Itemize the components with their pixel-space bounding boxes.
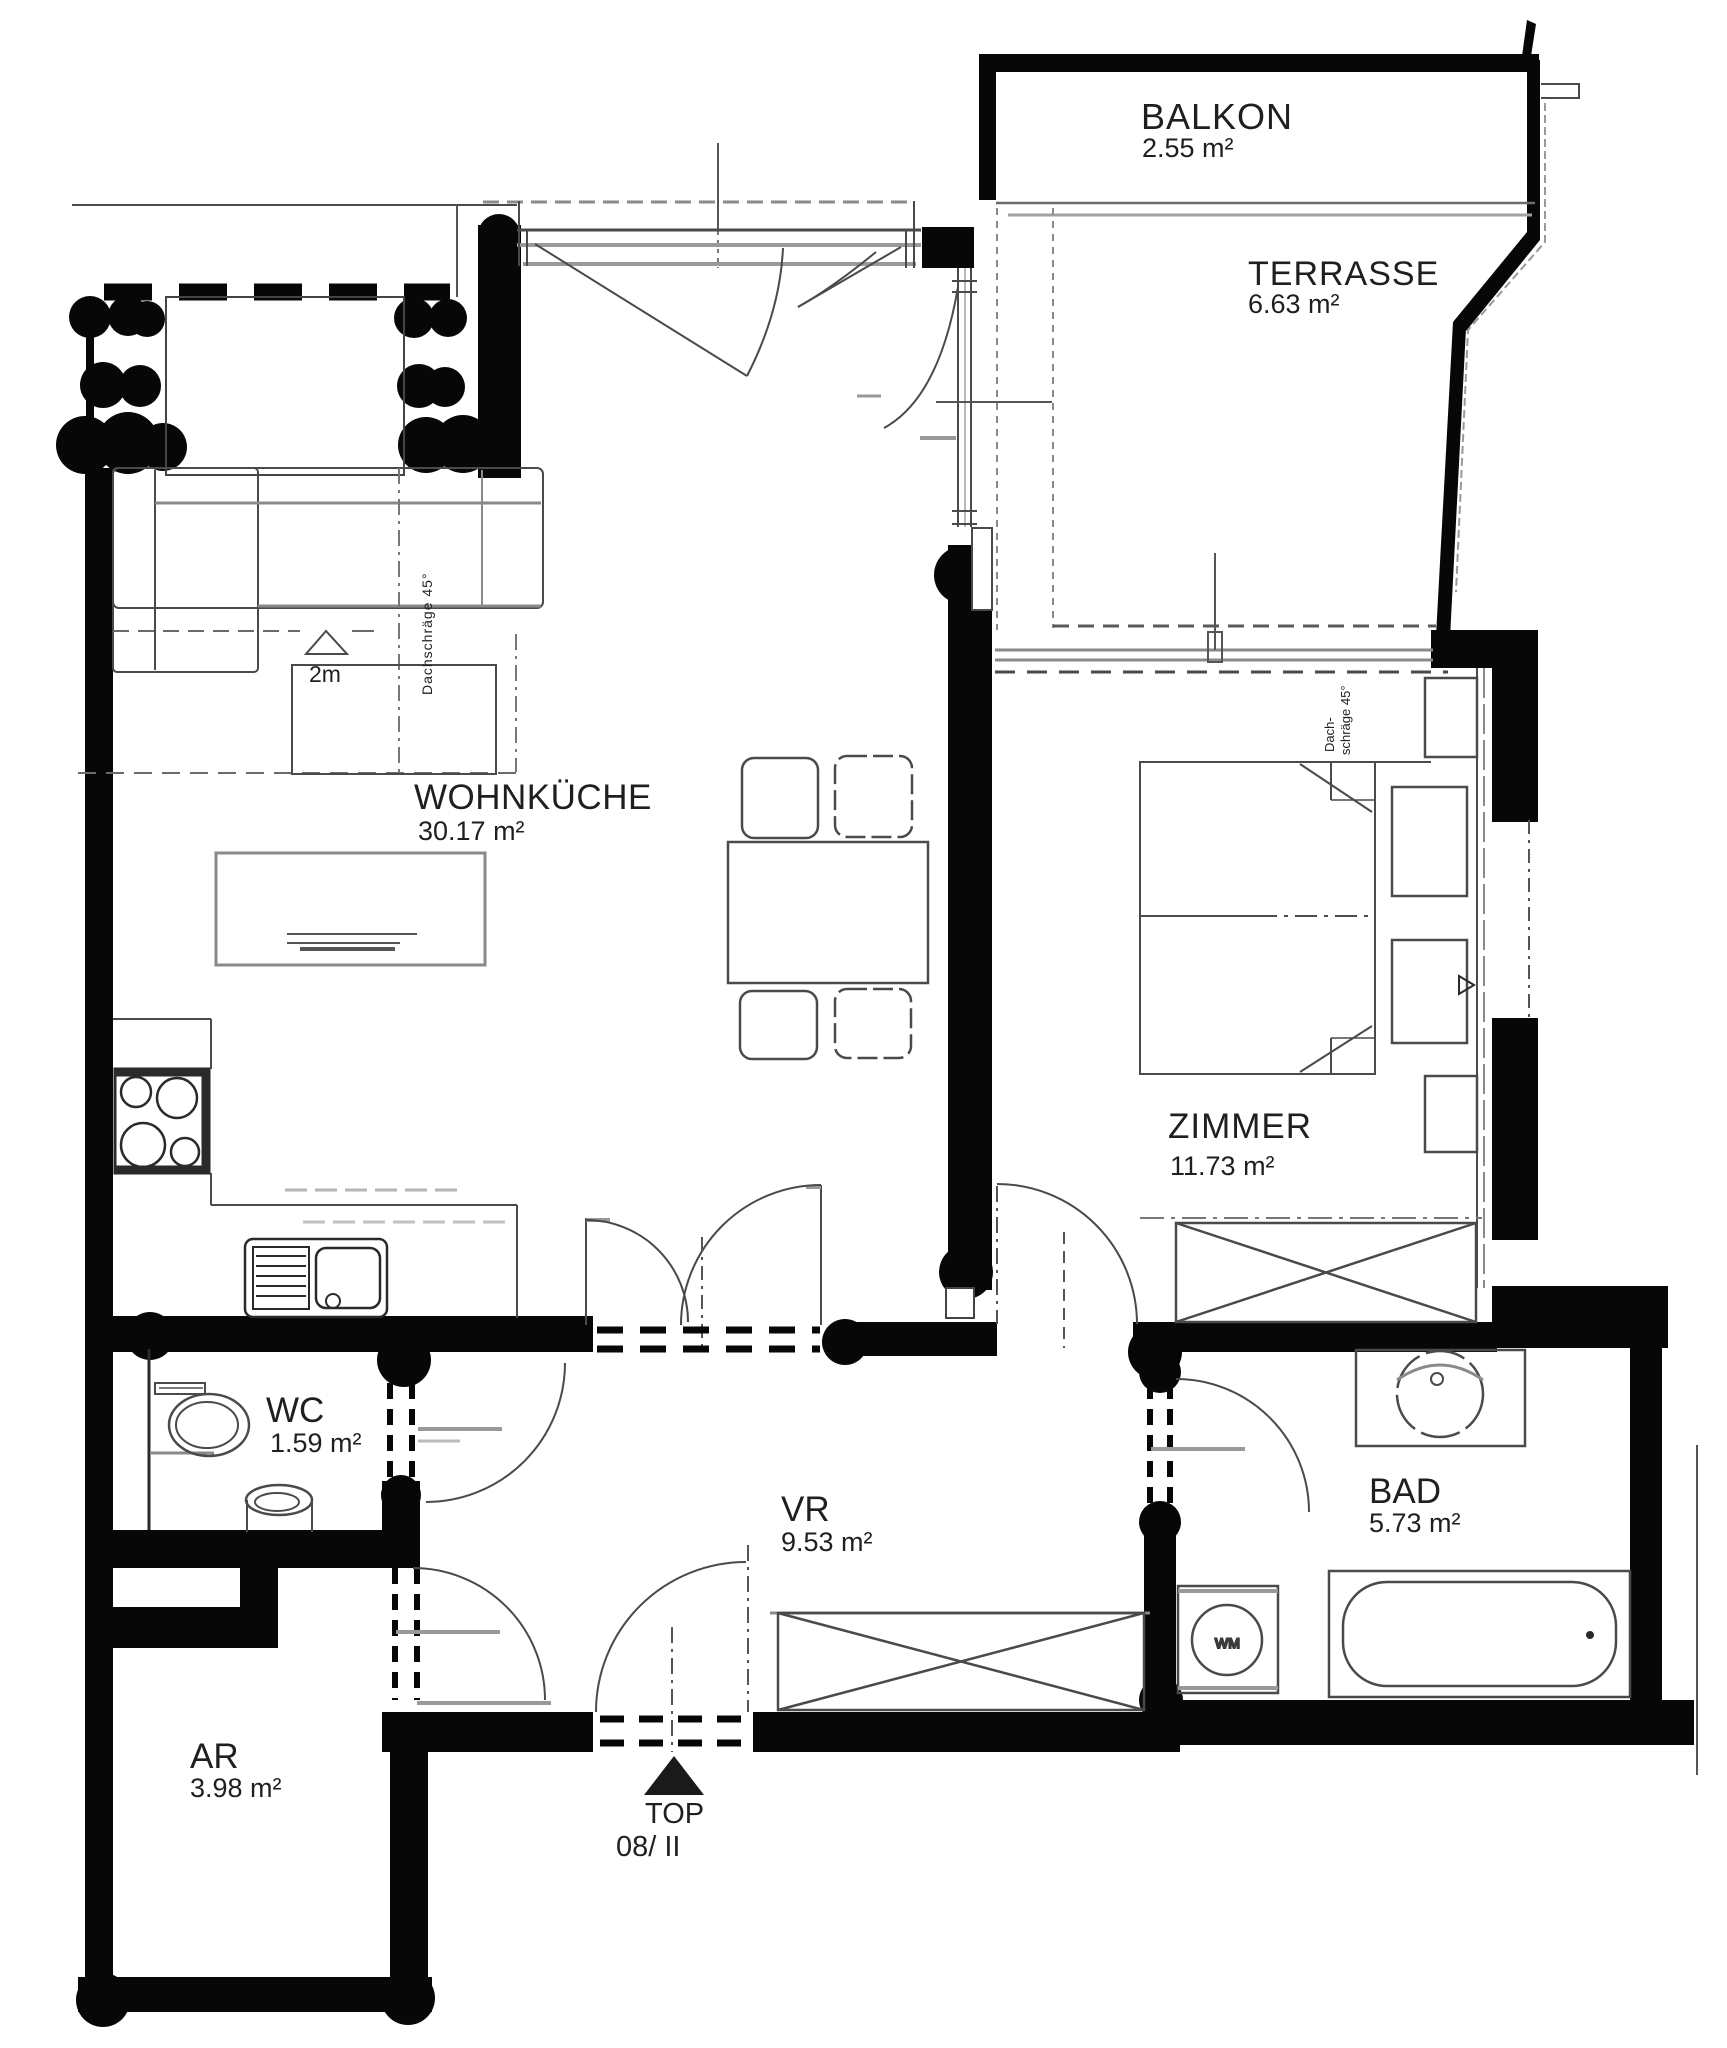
svg-text:5.73 m²: 5.73 m² bbox=[1369, 1508, 1461, 1538]
svg-text:ZIMMER: ZIMMER bbox=[1168, 1107, 1312, 1146]
svg-text:Dach-: Dach- bbox=[1322, 717, 1337, 752]
svg-text:1.59 m²: 1.59 m² bbox=[270, 1428, 362, 1458]
svg-text:2m: 2m bbox=[309, 661, 341, 687]
svg-text:3.98 m²: 3.98 m² bbox=[190, 1773, 282, 1803]
svg-text:Dachschräge 45°: Dachschräge 45° bbox=[419, 572, 435, 695]
svg-text:WOHNKÜCHE: WOHNKÜCHE bbox=[414, 778, 652, 817]
svg-text:WC: WC bbox=[266, 1391, 324, 1430]
svg-text:TOP: TOP bbox=[645, 1798, 704, 1830]
svg-text:schräge 45°: schräge 45° bbox=[1338, 685, 1353, 755]
svg-text:08/ II: 08/ II bbox=[616, 1831, 681, 1863]
svg-text:9.53 m²: 9.53 m² bbox=[781, 1527, 873, 1557]
svg-text:VR: VR bbox=[781, 1490, 830, 1529]
svg-text:BALKON: BALKON bbox=[1141, 96, 1293, 137]
svg-text:AR: AR bbox=[190, 1737, 239, 1776]
svg-text:WM: WM bbox=[1215, 1635, 1240, 1651]
svg-text:6.63 m²: 6.63 m² bbox=[1248, 289, 1340, 319]
svg-text:11.73 m²: 11.73 m² bbox=[1170, 1151, 1275, 1181]
svg-text:TERRASSE: TERRASSE bbox=[1248, 255, 1439, 293]
svg-text:30.17 m²: 30.17 m² bbox=[418, 816, 525, 846]
svg-text:2.55 m²: 2.55 m² bbox=[1142, 133, 1234, 163]
svg-text:BAD: BAD bbox=[1369, 1472, 1441, 1511]
